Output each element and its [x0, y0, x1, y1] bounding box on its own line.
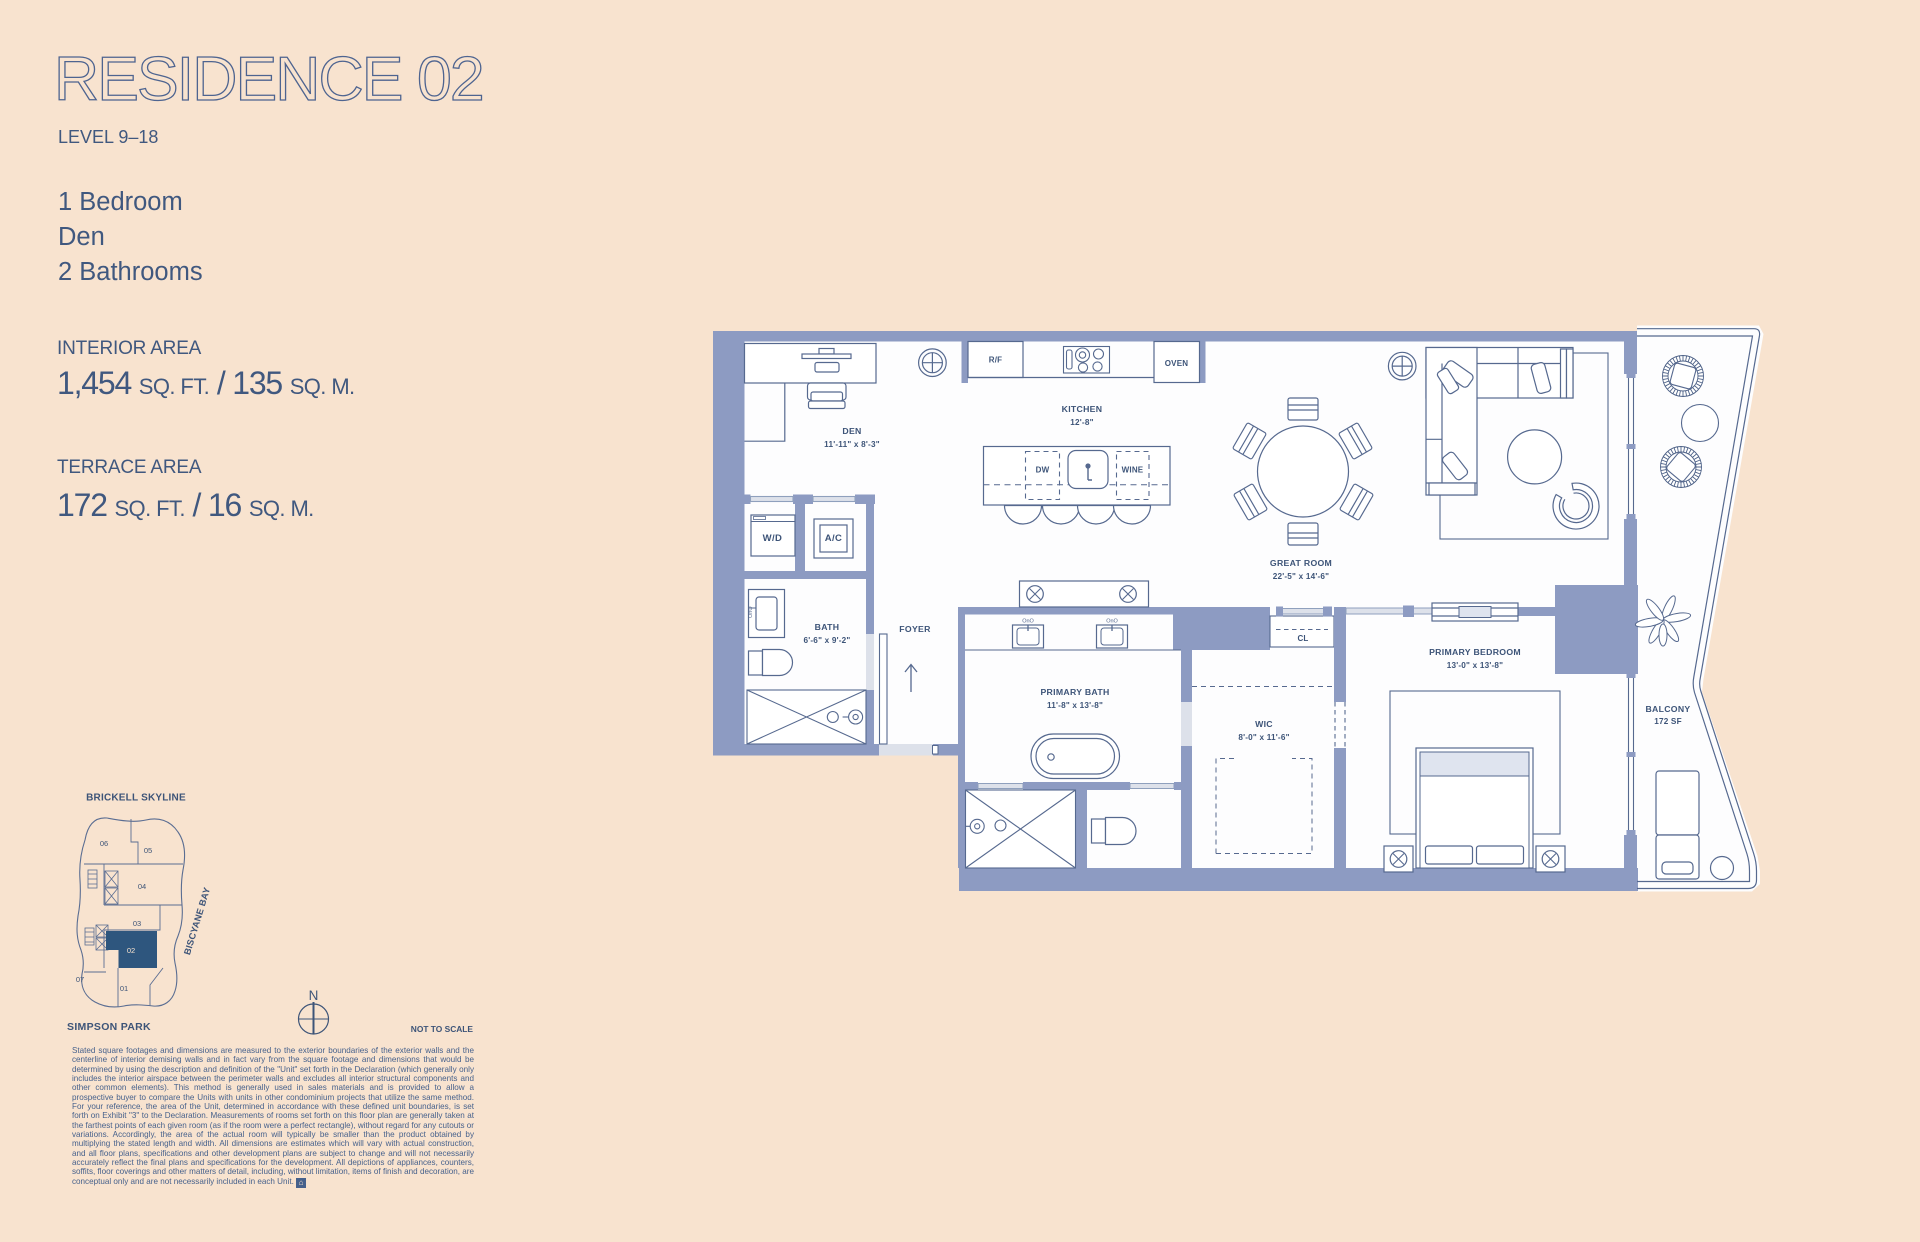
- svg-text:R/F: R/F: [989, 356, 1003, 365]
- svg-text:11'-11" x 8'-3": 11'-11" x 8'-3": [824, 440, 880, 449]
- svg-text:CL: CL: [1297, 634, 1308, 643]
- svg-text:OnO: OnO: [1106, 619, 1118, 625]
- svg-text:8'-0" x 11'-6": 8'-0" x 11'-6": [1238, 733, 1289, 742]
- svg-text:01: 01: [120, 984, 128, 993]
- svg-text:OnO: OnO: [1022, 619, 1034, 625]
- svg-text:6'-6" x 9'-2": 6'-6" x 9'-2": [803, 636, 850, 645]
- svg-text:07: 07: [76, 975, 84, 984]
- svg-text:172 SF: 172 SF: [1654, 717, 1682, 726]
- svg-text:DEN: DEN: [842, 426, 861, 436]
- svg-text:GREAT ROOM: GREAT ROOM: [1270, 558, 1332, 568]
- svg-text:PRIMARY BATH: PRIMARY BATH: [1040, 687, 1109, 697]
- svg-text:OnO: OnO: [748, 606, 754, 618]
- svg-text:12'-8": 12'-8": [1070, 418, 1093, 427]
- svg-text:DW: DW: [1036, 466, 1050, 475]
- svg-text:OVEN: OVEN: [1165, 359, 1188, 368]
- svg-text:KITCHEN: KITCHEN: [1062, 404, 1103, 414]
- svg-text:11'-8" x 13'-8": 11'-8" x 13'-8": [1047, 701, 1103, 710]
- svg-text:BISCYANE BAY: BISCYANE BAY: [182, 886, 212, 956]
- svg-text:02: 02: [127, 946, 135, 955]
- svg-text:N: N: [309, 988, 319, 1003]
- svg-text:05: 05: [144, 846, 152, 855]
- svg-text:04: 04: [138, 882, 146, 891]
- svg-text:WINE: WINE: [1122, 466, 1144, 475]
- svg-text:A/C: A/C: [825, 533, 843, 544]
- svg-text:03: 03: [133, 919, 141, 928]
- svg-text:22'-5" x 14'-6": 22'-5" x 14'-6": [1273, 572, 1330, 581]
- svg-text:BALCONY: BALCONY: [1645, 704, 1690, 714]
- svg-text:BATH: BATH: [815, 622, 840, 632]
- svg-text:PRIMARY BEDROOM: PRIMARY BEDROOM: [1429, 647, 1521, 657]
- svg-text:BRICKELL SKYLINE: BRICKELL SKYLINE: [86, 793, 186, 804]
- svg-text:WIC: WIC: [1255, 719, 1273, 729]
- svg-text:FOYER: FOYER: [899, 624, 931, 634]
- svg-text:W/D: W/D: [763, 533, 783, 544]
- svg-text:06: 06: [100, 839, 108, 848]
- svg-text:SIMPSON PARK: SIMPSON PARK: [67, 1021, 151, 1033]
- svg-text:NOT TO SCALE: NOT TO SCALE: [411, 1024, 474, 1034]
- svg-text:13'-0" x 13'-8": 13'-0" x 13'-8": [1447, 661, 1504, 670]
